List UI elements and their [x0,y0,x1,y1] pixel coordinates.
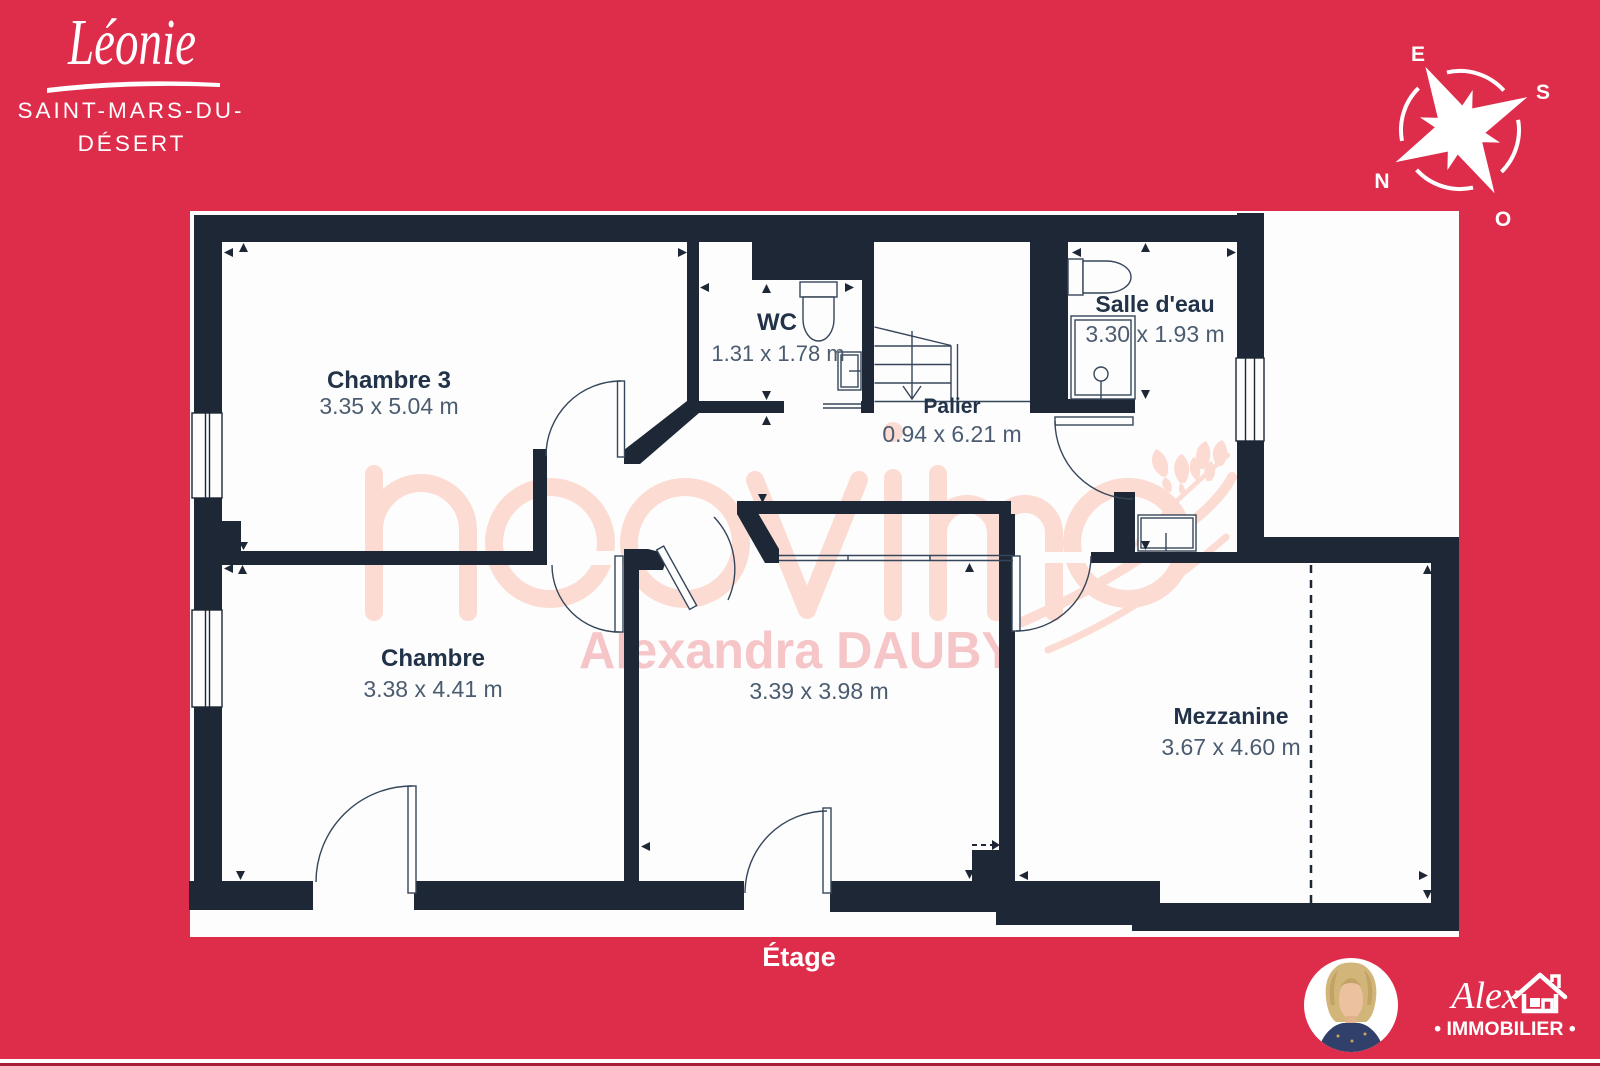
svg-text:0.94 x 6.21 m: 0.94 x 6.21 m [882,421,1021,447]
svg-text:E: E [1411,43,1425,66]
svg-text:3.30 x 1.93 m: 3.30 x 1.93 m [1085,321,1224,347]
svg-text:Chambre 3: Chambre 3 [327,367,451,394]
svg-text:3.38 x 4.41 m: 3.38 x 4.41 m [363,676,502,702]
svg-text:O: O [1495,208,1511,231]
svg-text:SAINT-MARS-DU-: SAINT-MARS-DU- [18,98,245,123]
svg-text:• IMMOBILIER •: • IMMOBILIER • [1434,1018,1576,1040]
svg-text:Mezzanine: Mezzanine [1173,703,1288,729]
svg-text:Salle d'eau: Salle d'eau [1095,291,1214,317]
svg-text:3.39 x 3.98 m: 3.39 x 3.98 m [749,678,888,704]
svg-text:DÉSERT: DÉSERT [78,131,187,156]
svg-text:Alexandra DAUBY: Alexandra DAUBY [579,622,1015,680]
svg-text:1.31 x 1.78 m: 1.31 x 1.78 m [711,341,844,366]
svg-text:WC: WC [757,309,797,336]
svg-text:S: S [1536,81,1550,104]
svg-text:Chambre: Chambre [381,645,485,672]
svg-text:Étage: Étage [762,941,836,972]
svg-text:3.67 x 4.60 m: 3.67 x 4.60 m [1161,734,1300,760]
svg-text:Palier: Palier [923,395,980,418]
svg-text:N: N [1374,170,1389,193]
svg-text:Alex: Alex [1448,975,1519,1017]
svg-text:Léonie: Léonie [67,6,196,79]
svg-text:3.35 x 5.04 m: 3.35 x 5.04 m [319,393,458,419]
